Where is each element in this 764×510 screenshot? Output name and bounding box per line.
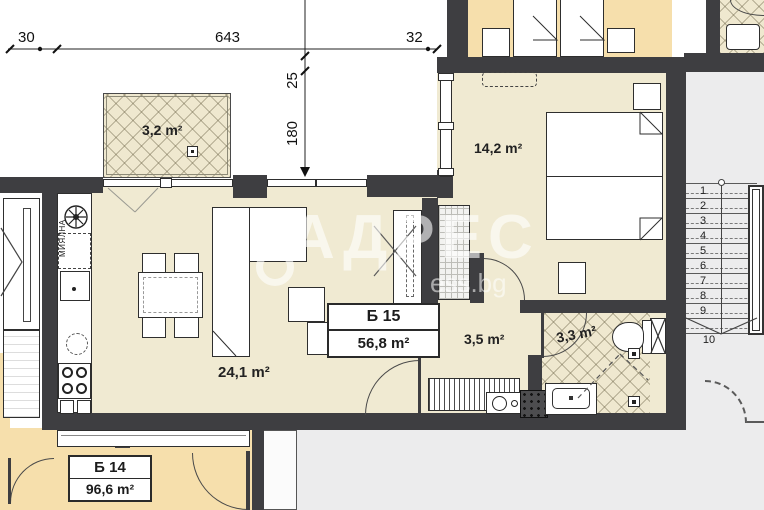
unit-b15-box: Б 15 56,8 m² xyxy=(327,303,440,358)
unit-b15-area: 56,8 m² xyxy=(329,331,438,356)
stair-step-number: 1 xyxy=(694,185,712,197)
bath-door-leaf xyxy=(541,313,544,358)
dim-label-643: 643 xyxy=(215,29,240,46)
living-hall-door-leaf xyxy=(418,358,421,416)
b14-right-door-leaf xyxy=(246,451,250,510)
wash-basin xyxy=(545,383,597,415)
stair-step-number: 10 xyxy=(700,334,718,346)
dim-label-32: 32 xyxy=(406,29,423,46)
bedroom-window-mullion-2 xyxy=(438,122,454,130)
unit-b14-name: Б 14 xyxy=(70,457,150,479)
stove xyxy=(58,363,91,399)
neighbor-bath-sink xyxy=(726,24,760,50)
wall-left xyxy=(42,177,57,428)
hall-area-label: 3,5 m² xyxy=(464,331,504,347)
kitchen-sink xyxy=(60,271,90,301)
wall-bottom xyxy=(42,413,684,430)
b14-side-room xyxy=(263,430,297,510)
installation-shaft xyxy=(520,390,548,418)
wash-basin-drain xyxy=(569,396,573,400)
hall-cabinet xyxy=(438,205,470,300)
stair-step-number: 8 xyxy=(694,290,712,302)
dimension-arrow xyxy=(300,167,310,177)
stair-step-number: 7 xyxy=(694,275,712,287)
bedroom-window-mullion-1 xyxy=(438,73,454,81)
stairwell-door-line xyxy=(747,421,764,423)
burner-icon xyxy=(76,383,87,394)
stair-step-number: 9 xyxy=(694,305,712,317)
living-window xyxy=(267,179,367,187)
dishwasher-label: МИЯЛНА xyxy=(58,219,67,257)
dim-label-180: 180 xyxy=(284,121,301,146)
sofa-chaise xyxy=(212,207,250,357)
dining-chair xyxy=(142,317,166,338)
wall-bedroom-right xyxy=(666,57,686,430)
dimension-dot xyxy=(426,47,430,51)
dining-chair xyxy=(174,253,199,273)
floor-plan: МИЯЛНА xyxy=(0,0,764,510)
wall-wardrobe-side xyxy=(422,198,438,312)
counter-end-unit-2 xyxy=(77,400,91,414)
washer-drum xyxy=(492,396,507,411)
stair-step-number: 4 xyxy=(694,230,712,242)
unit-b15-name: Б 15 xyxy=(329,305,438,331)
neighbor-nightstand xyxy=(607,28,635,53)
burner-icon xyxy=(62,367,73,378)
left-bed xyxy=(3,330,40,418)
bath-window xyxy=(650,318,666,354)
dining-table xyxy=(138,272,203,318)
washing-machine-icon xyxy=(486,392,522,414)
bedroom-window-mullion-3 xyxy=(438,168,454,176)
stair-step-number: 5 xyxy=(694,245,712,257)
neighbor-nightstand xyxy=(482,28,510,57)
bedroom-area-label: 14,2 m² xyxy=(474,140,522,156)
wardrobe-sliding-rail xyxy=(406,215,414,297)
double-bed xyxy=(546,112,663,240)
burner-icon xyxy=(76,367,87,378)
bed-mattress-divider xyxy=(547,176,662,177)
balcony-drain-dot xyxy=(191,150,194,153)
left-wardrobe-bar xyxy=(23,208,31,322)
living-area-label: 24,1 m² xyxy=(218,364,270,381)
wall-neighbor-bath-left xyxy=(706,0,720,55)
stair-center-line xyxy=(721,183,722,333)
oven-dashed-circle xyxy=(66,333,88,355)
unit-b14-box: Б 14 96,6 m² xyxy=(68,455,152,502)
b14-left-door-leaf xyxy=(8,458,11,504)
dimension-ticks xyxy=(6,45,441,75)
stair-start-circle xyxy=(718,179,725,186)
wall-hall-bath-top xyxy=(520,300,684,313)
neighbor-mattress-2 xyxy=(560,0,604,57)
b14-window-band xyxy=(57,430,250,447)
wardrobe-living xyxy=(393,210,422,305)
counter-end-unit-1 xyxy=(60,400,74,414)
stair-step-number: 3 xyxy=(694,215,712,227)
wall-bedroom-top xyxy=(437,57,684,73)
dim-label-30: 30 xyxy=(18,29,35,46)
unit-b14-area: 96,6 m² xyxy=(70,479,150,500)
dining-chair xyxy=(174,317,199,338)
balcony-area-label: 3,2 m² xyxy=(142,122,182,138)
wall-pier-mid xyxy=(233,175,267,198)
stair-step-number: 2 xyxy=(694,200,712,212)
neighbor-top-hall xyxy=(672,0,706,57)
stair-step-number: 6 xyxy=(694,260,712,272)
dim-label-25: 25 xyxy=(284,72,301,89)
burner-icon xyxy=(62,383,73,394)
wall-neighbor-top-left xyxy=(447,0,468,57)
bath-symbol-1-dot xyxy=(632,352,636,356)
wall-b14-right xyxy=(252,428,264,510)
elevator xyxy=(748,185,764,335)
washer-knob xyxy=(511,400,518,407)
kitchen-sink-drain xyxy=(72,287,76,291)
left-wardrobe xyxy=(3,198,40,330)
dining-table-inner xyxy=(143,277,198,313)
dining-chair xyxy=(142,253,166,273)
b14-window-inner-line xyxy=(61,435,246,436)
elevator-inner xyxy=(752,189,760,331)
coffee-table-1 xyxy=(288,287,325,322)
bedroom-radiator xyxy=(482,72,537,87)
bottom-background xyxy=(252,428,764,510)
bed-bench xyxy=(558,262,586,294)
bedroom-door-leaf xyxy=(480,256,484,302)
balcony-door-handle xyxy=(160,178,172,188)
wall-bath-left-top xyxy=(528,300,542,313)
wall-neighbor-bath-bottom xyxy=(684,53,764,72)
neighbor-mattress-1 xyxy=(513,0,557,57)
stair-step-line xyxy=(686,333,757,334)
wall-pier-right xyxy=(367,175,437,197)
living-window-mullion xyxy=(315,179,317,187)
nightstand xyxy=(633,83,661,110)
dimension-dot xyxy=(38,47,42,51)
bath-symbol-2-dot xyxy=(632,400,636,404)
